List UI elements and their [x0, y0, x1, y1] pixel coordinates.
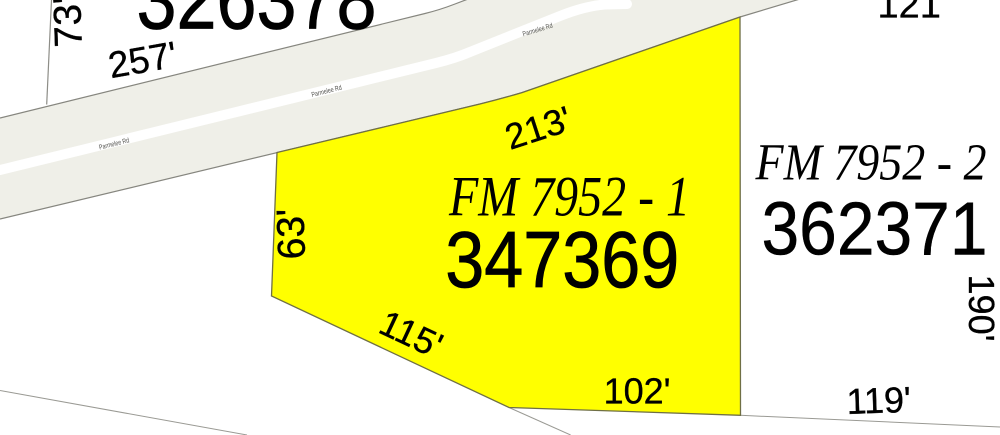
- svg-text:347369: 347369: [445, 215, 679, 304]
- svg-text:119': 119': [846, 379, 912, 422]
- svg-text:121': 121': [878, 0, 949, 27]
- svg-text:102': 102': [604, 370, 671, 411]
- svg-text:190': 190': [961, 275, 1000, 342]
- svg-text:362371: 362371: [762, 187, 988, 271]
- svg-text:63': 63': [269, 208, 314, 260]
- svg-text:73': 73': [46, 0, 91, 48]
- svg-text:FM 7952 - 2: FM 7952 - 2: [755, 135, 987, 192]
